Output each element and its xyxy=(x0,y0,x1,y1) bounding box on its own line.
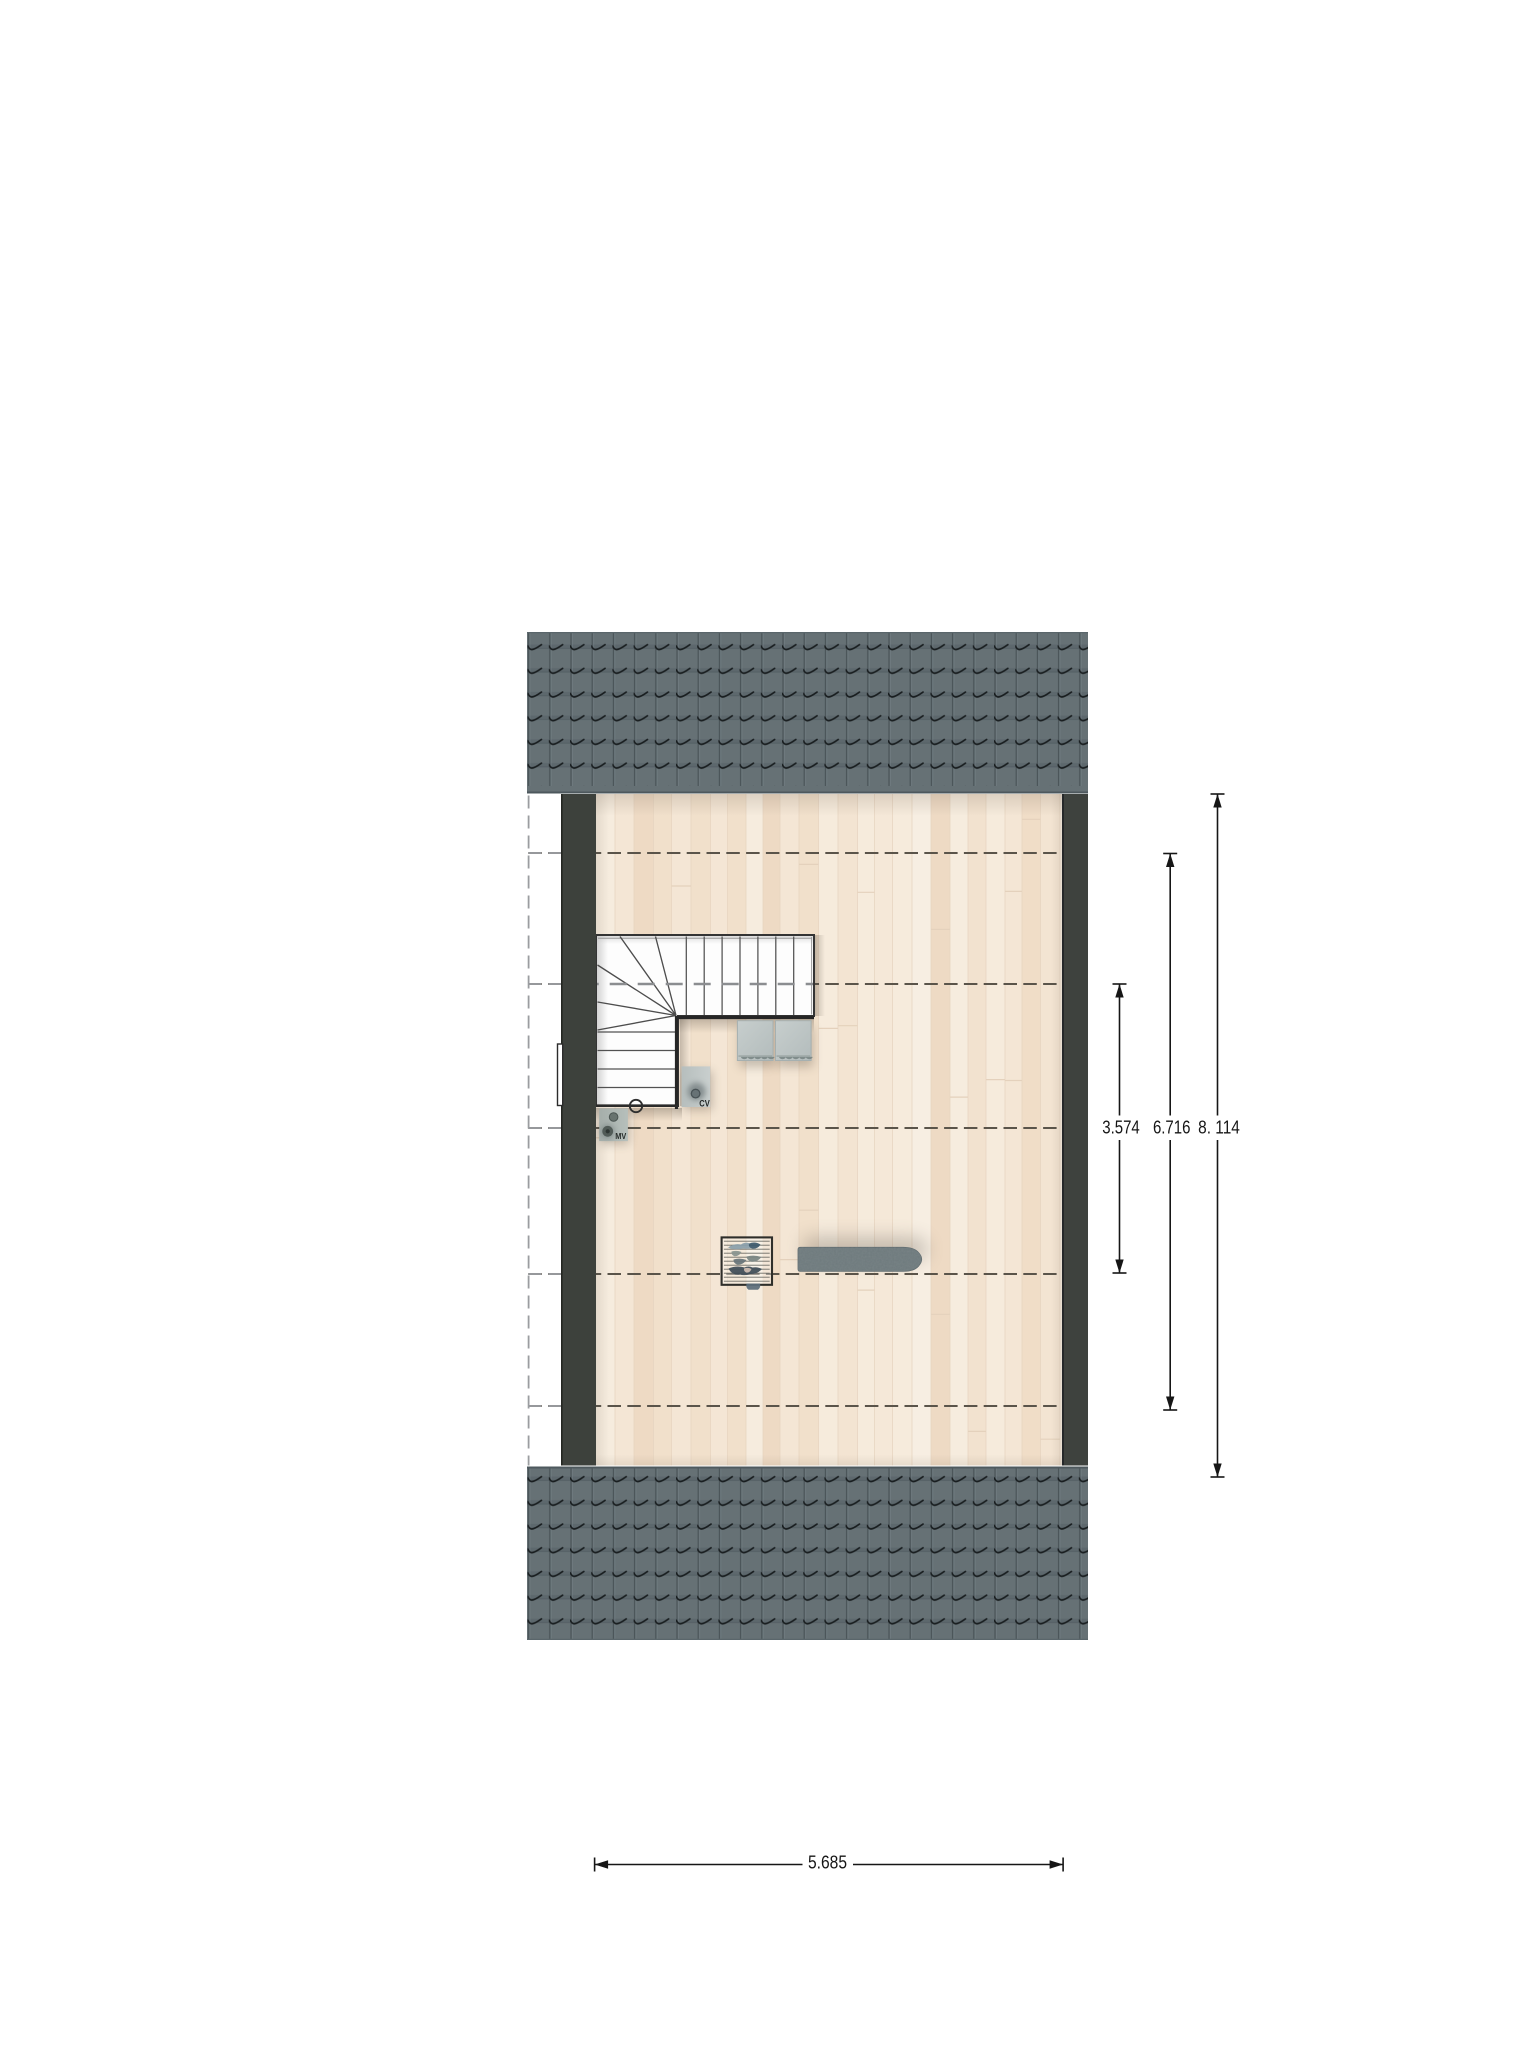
svg-text:6.716: 6.716 xyxy=(1153,1117,1191,1138)
svg-text:5.685: 5.685 xyxy=(808,1851,847,1872)
svg-text:3.574: 3.574 xyxy=(1102,1117,1140,1138)
svg-text:CV: CV xyxy=(699,1097,710,1108)
svg-text:MV: MV xyxy=(615,1131,626,1141)
svg-text:8. 114: 8. 114 xyxy=(1198,1117,1240,1138)
